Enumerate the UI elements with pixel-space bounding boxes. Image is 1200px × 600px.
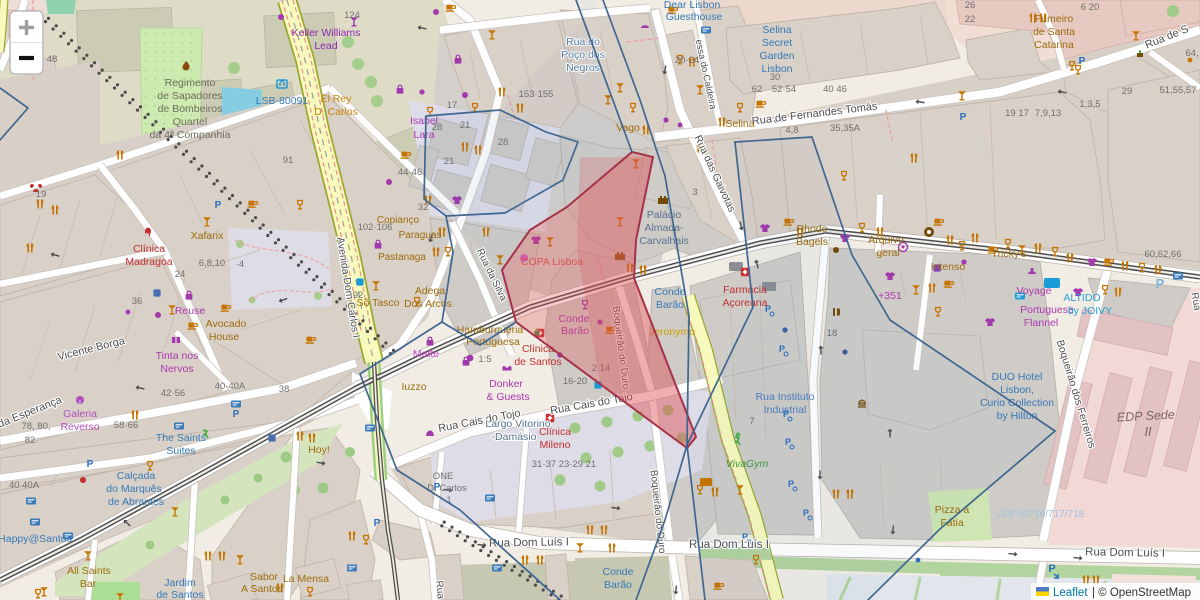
svg-text:19 17: 19 17 [1005,108,1029,119]
svg-text:Conde: Conde [603,566,634,578]
svg-text:Happy@Santos: Happy@Santos [0,533,72,545]
svg-text:II: II [1145,425,1152,439]
svg-text:32: 32 [418,202,429,213]
svg-text:ALTIDO: ALTIDO [1063,292,1100,304]
svg-text:Quartel: Quartel [173,116,207,128]
svg-text:Reverso: Reverso [60,421,99,433]
svg-text:17: 17 [447,100,458,111]
svg-text:de Santos: de Santos [514,356,561,368]
svg-text:42·56: 42·56 [161,388,185,399]
svg-text:Pastanaga: Pastanaga [378,252,426,263]
svg-text:Tricky’s: Tricky’s [992,248,1027,260]
svg-text:29: 29 [1122,86,1133,97]
svg-text:Palácio: Palácio [647,209,682,221]
svg-text:20·24: 20·24 [675,55,699,66]
svg-text:Rua Dom Luís I: Rua Dom Luís I [1085,546,1165,559]
svg-text:The Saints: The Saints [156,432,206,444]
svg-text:Clínica: Clínica [133,243,165,255]
svg-text:3: 3 [692,187,697,198]
svg-text:Bar: Bar [80,578,97,590]
svg-text:LSB 00716/717/718: LSB 00716/717/718 [996,509,1085,520]
svg-text:P: P [1048,563,1055,575]
svg-text:da 4ª Companhia: da 4ª Companhia [150,129,231,141]
svg-text:Lead: Lead [314,40,338,52]
svg-text:Arquivo: Arquivo [868,234,904,246]
svg-text:·4: ·4 [236,259,244,270]
svg-text:Jardim: Jardim [164,577,196,589]
svg-text:36: 36 [132,296,143,307]
svg-text:Rua: Rua [433,580,446,600]
svg-text:22: 22 [965,14,976,25]
svg-text:Clínica: Clínica [539,426,571,438]
svg-text:44·46: 44·46 [398,167,422,178]
svg-text:40·40A: 40·40A [215,381,246,392]
svg-text:40 46: 40 46 [823,84,847,95]
svg-text:Hoy!: Hoy! [308,444,330,456]
svg-text:Catarina: Catarina [1034,39,1074,51]
svg-text:60,62,66: 60,62,66 [1145,249,1182,260]
svg-text:52·54: 52·54 [772,84,796,95]
svg-text:31·37 23·29 21: 31·37 23·29 21 [532,459,596,470]
svg-text:124: 124 [344,10,360,21]
svg-text:P: P [87,459,94,470]
svg-text:Xafarix: Xafarix [191,230,224,242]
svg-text:de Abrantes: de Abrantes [108,496,164,508]
svg-text:82: 82 [25,435,36,446]
svg-text:geral: geral [876,247,899,259]
svg-text:+351: +351 [878,290,902,302]
svg-text:Tinta nos: Tinta nos [156,350,199,362]
svg-text:92: 92 [353,290,364,301]
svg-text:Conde: Conde [655,286,686,298]
svg-text:| © OpenStreetMap: | © OpenStreetMap [1092,587,1191,599]
svg-text:Flannel: Flannel [1024,317,1058,329]
svg-text:Selina: Selina [762,24,791,36]
svg-text:48: 48 [47,54,58,65]
svg-text:Donker: Donker [489,378,523,390]
svg-text:Iuzzo: Iuzzo [401,381,426,393]
svg-text:A Santos: A Santos [241,583,283,595]
svg-text:Reuse: Reuse [175,305,206,317]
svg-text:Fumeiro: Fumeiro [1035,13,1074,25]
svg-text:DUO Hotel: DUO Hotel [992,371,1043,383]
svg-text:26: 26 [965,0,976,11]
svg-text:Leaflet: Leaflet [1053,587,1088,599]
svg-text:Secret: Secret [762,37,792,49]
svg-text:1,3,5: 1,3,5 [1079,99,1100,110]
svg-text:Suites: Suites [166,445,195,457]
svg-text:All Saints: All Saints [67,565,111,577]
svg-text:de Bombeiros: de Bombeiros [158,103,223,115]
svg-text:35,35A: 35,35A [830,123,861,134]
svg-text:Portuguese: Portuguese [1020,304,1074,316]
svg-text:Garden: Garden [759,50,794,62]
svg-text:64,: 64, [1185,48,1198,59]
svg-text:-Damásio: -Damásio [492,431,537,443]
svg-text:LSB-80091: LSB-80091 [256,95,309,107]
svg-text:30: 30 [770,72,781,83]
svg-text:Voyage: Voyage [1016,285,1051,297]
svg-text:4,8: 4,8 [785,125,798,136]
svg-text:La Mensa: La Mensa [283,573,329,585]
svg-text:House: House [209,331,240,343]
svg-text:Hamburgueria: Hamburgueria [457,324,524,336]
svg-text:38: 38 [279,384,290,395]
svg-text:de Sapadores: de Sapadores [157,90,222,102]
svg-text:51,55,57: 51,55,57 [1160,85,1197,96]
svg-text:7,9,13: 7,9,13 [1035,108,1061,119]
svg-text:Adega: Adega [415,285,446,297]
svg-text:Selina: Selina [725,118,754,130]
svg-text:Mileno: Mileno [540,439,571,451]
svg-text:1:5: 1:5 [478,354,491,365]
svg-text:19: 19 [36,189,47,200]
svg-text:78, 80,: 78, 80, [21,421,50,432]
svg-text:Lisbon,: Lisbon, [1000,384,1034,396]
svg-text:Barão: Barão [604,579,632,591]
svg-text:Dear Lisbon: Dear Lisbon [664,0,721,11]
svg-text:Barão: Barão [656,299,684,311]
svg-text:& Guests: & Guests [486,391,529,403]
svg-text:Sabor: Sabor [250,571,279,583]
svg-text:P: P [215,200,222,211]
svg-text:Carvalhais: Carvalhais [639,235,689,247]
svg-text:Keller Williams: Keller Williams [292,27,361,39]
svg-text:91: 91 [283,155,294,166]
svg-text:D. Carlos: D. Carlos [314,106,358,118]
svg-text:58·66: 58·66 [114,420,138,431]
svg-text:Galeria: Galeria [63,408,97,420]
svg-text:P: P [374,518,381,529]
svg-text:Regimento: Regimento [165,77,216,89]
svg-text:16-20: 16-20 [563,376,587,387]
svg-text:Guesthouse: Guesthouse [666,11,723,23]
svg-text:El Rey: El Rey [321,93,353,105]
svg-text:P: P [1079,56,1086,67]
svg-text:Intenso: Intenso [931,261,966,273]
svg-text:Nervos: Nervos [160,363,193,375]
svg-text:de Santa: de Santa [1033,26,1075,38]
svg-text:by JOIVY: by JOIVY [1068,305,1112,317]
svg-text:Madragoa: Madragoa [125,256,172,268]
svg-text:do Marquês: do Marquês [106,483,161,495]
svg-text:de Santos: de Santos [156,589,203,600]
svg-text:Paraguas: Paraguas [399,230,442,241]
svg-text:Matte: Matte [413,348,439,360]
svg-text:ONE: ONE [433,471,454,482]
svg-text:6,8,10: 6,8,10 [199,258,225,269]
svg-text:Avocado: Avocado [206,318,247,330]
svg-text:P: P [1156,276,1165,291]
svg-text:62: 62 [752,84,763,95]
svg-text:Almada-: Almada- [644,222,684,234]
svg-text:P: P [960,112,967,123]
svg-text:6 20: 6 20 [1081,2,1100,13]
svg-text:24: 24 [175,269,186,280]
svg-text:102·106: 102·106 [358,222,393,233]
svg-text:♀: ♀ [77,399,82,406]
svg-text:Calçada: Calçada [117,470,156,482]
svg-text:P: P [233,409,240,420]
svg-text:40 40A: 40 40A [9,480,40,491]
